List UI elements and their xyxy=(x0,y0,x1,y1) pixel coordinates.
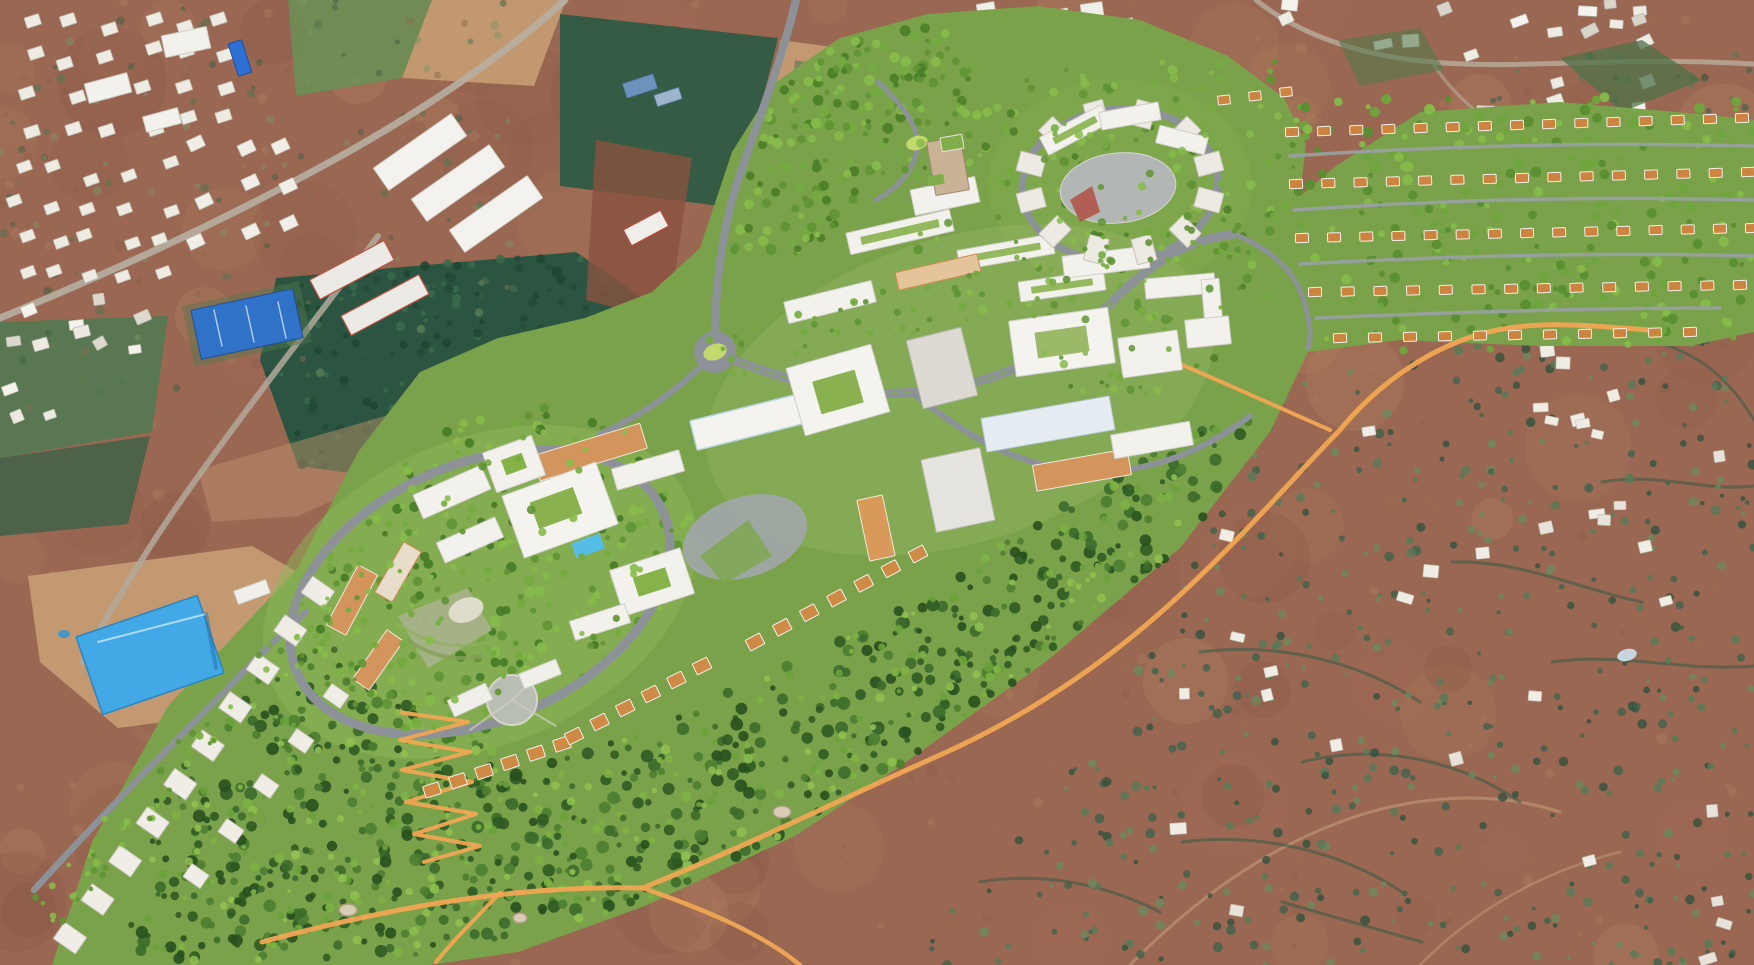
canopy-tree xyxy=(982,692,987,697)
campus-tree xyxy=(411,717,421,727)
terrain-grain xyxy=(1578,932,1583,937)
forest-tree xyxy=(459,855,464,860)
park-tree xyxy=(925,38,930,43)
campus-tree xyxy=(408,485,417,494)
forest-tree xyxy=(829,683,836,690)
forest-tree xyxy=(177,950,185,958)
park-tree xyxy=(771,188,780,197)
forest-tree xyxy=(318,773,326,781)
right-scrub xyxy=(1569,882,1574,887)
topleft-scrub xyxy=(70,236,75,241)
right-scrub xyxy=(1495,353,1505,363)
forest-speckle xyxy=(352,339,360,347)
forest-tree xyxy=(1031,621,1042,632)
right-scrub xyxy=(1697,435,1704,442)
forest-tree xyxy=(393,718,404,729)
boulevard-tree xyxy=(855,318,862,325)
right-scrub xyxy=(1089,930,1093,934)
forest-tree xyxy=(912,672,923,683)
street-tree xyxy=(102,865,108,871)
campus-tree xyxy=(460,569,467,576)
topright-scrub xyxy=(1690,84,1695,89)
street-tree xyxy=(295,664,300,669)
forest-speckle xyxy=(370,401,378,409)
campus-tree xyxy=(360,616,369,625)
canopy-tree xyxy=(1009,674,1013,678)
park-tree xyxy=(872,39,881,48)
right-scrub xyxy=(1626,393,1634,401)
right-scrub xyxy=(1618,708,1627,717)
villa-tree xyxy=(1651,290,1657,296)
campus-tree xyxy=(535,586,545,596)
canopy-tree xyxy=(325,903,334,912)
forest-tree xyxy=(342,678,350,686)
park-tree xyxy=(1059,355,1064,360)
village-house xyxy=(92,293,105,306)
right-scrub xyxy=(1682,423,1687,428)
forest-speckle xyxy=(315,347,322,354)
boulevard-tree xyxy=(742,371,747,376)
right-scrub xyxy=(1227,919,1234,926)
park-tree xyxy=(1208,103,1217,112)
right-scrub xyxy=(1508,430,1514,436)
canopy-tree xyxy=(544,878,552,886)
forest-tree xyxy=(388,760,395,767)
villa-tree xyxy=(1556,120,1562,126)
right-scrub xyxy=(1262,856,1270,864)
terrain-grain xyxy=(136,280,141,285)
villa xyxy=(1439,285,1452,294)
right-scrub xyxy=(1608,596,1616,604)
topleft-scrub xyxy=(434,72,441,79)
park-tree xyxy=(1166,346,1172,352)
topleft-scrub xyxy=(509,285,517,293)
park-tree xyxy=(758,236,768,246)
campus-tree xyxy=(566,459,574,467)
right-scrub xyxy=(1321,772,1329,780)
right-scrub xyxy=(1621,875,1629,883)
park-tree xyxy=(802,195,809,202)
park-tree xyxy=(793,93,800,100)
topleft-scrub xyxy=(93,186,102,195)
forest-tree xyxy=(1051,635,1056,640)
villa xyxy=(1360,232,1373,241)
forest-speckle xyxy=(383,388,388,393)
right-scrub xyxy=(1651,525,1660,534)
forest-tree xyxy=(950,674,956,680)
right-scrub xyxy=(1679,957,1685,963)
forest-tree xyxy=(483,803,493,813)
villa-tree xyxy=(1362,127,1373,138)
right-scrub xyxy=(1737,654,1745,662)
canopy-tree xyxy=(420,925,424,929)
terrain-grain xyxy=(1388,111,1395,118)
right-scrub xyxy=(1744,743,1749,748)
park-tree xyxy=(925,119,931,125)
right-scrub xyxy=(1134,665,1144,675)
campus-tree xyxy=(613,615,620,622)
park-tree xyxy=(828,190,834,196)
canopy-tree xyxy=(1090,572,1096,578)
forest-tree xyxy=(570,853,577,860)
forest-tree xyxy=(918,603,928,613)
right-scrub xyxy=(1131,781,1141,791)
terrain-grain xyxy=(1296,42,1308,54)
canopy-tree xyxy=(471,745,481,755)
right-scrub xyxy=(1439,693,1448,702)
terrain-grain xyxy=(1048,759,1054,765)
forest-tree xyxy=(655,824,660,829)
villa-tree xyxy=(1629,118,1640,129)
villa-tree xyxy=(1366,104,1371,109)
terrain-grain xyxy=(1482,715,1487,720)
park-tree xyxy=(1134,299,1141,306)
right-scrub xyxy=(1372,458,1382,468)
villa-tree xyxy=(1656,337,1662,343)
canopy-tree xyxy=(997,542,1005,550)
campus-tree xyxy=(514,650,523,659)
right-scrub xyxy=(1405,898,1411,904)
right-scrub xyxy=(1533,758,1541,766)
canopy-tree xyxy=(497,780,503,786)
terrain-grain xyxy=(1620,630,1626,636)
campus-tree xyxy=(615,629,622,636)
campus-tree xyxy=(476,416,485,425)
farm-house xyxy=(1362,426,1376,437)
right-scrub xyxy=(1509,458,1515,464)
canopy-tree xyxy=(456,919,464,927)
villa-tree xyxy=(1414,208,1423,217)
aerial-3d-masterplan-rendering xyxy=(0,0,1754,965)
forest-tree xyxy=(162,855,169,862)
right-scrub xyxy=(1630,950,1638,958)
right-scrub xyxy=(1296,493,1305,502)
forest-tree xyxy=(327,841,337,851)
forest-tree xyxy=(175,912,181,918)
forest-tree xyxy=(537,814,549,826)
terrain-grain xyxy=(1527,854,1537,864)
park-tree xyxy=(1169,150,1176,157)
canopy-tree xyxy=(1171,484,1180,493)
campus-tree xyxy=(637,566,643,572)
campus-tree xyxy=(331,662,336,667)
villa-tree xyxy=(1495,289,1501,295)
canopy-tree xyxy=(309,812,317,820)
canopy-tree xyxy=(665,755,673,763)
right-scrub xyxy=(1331,789,1336,794)
forest-tree xyxy=(306,799,319,812)
park-tree xyxy=(1080,79,1089,88)
forest-tree xyxy=(1143,563,1151,571)
park-tree xyxy=(1223,205,1231,213)
topleft-scrub xyxy=(180,6,185,11)
terrain-grain xyxy=(283,67,290,74)
park-tree xyxy=(1082,315,1090,323)
villa xyxy=(1713,224,1726,233)
park-tree xyxy=(1115,373,1124,382)
campus-tree xyxy=(348,661,355,668)
forest-tree xyxy=(170,892,179,901)
right-scrub xyxy=(1302,509,1309,516)
villa-tree xyxy=(1318,170,1327,179)
park-tree xyxy=(920,23,930,33)
forest-tree xyxy=(1140,534,1152,546)
park-tree xyxy=(932,36,942,46)
farm-house xyxy=(1713,450,1725,462)
topright-scrub xyxy=(1732,52,1739,59)
right-scrub xyxy=(1613,766,1623,776)
park-tree xyxy=(1079,90,1088,99)
canopy-tree xyxy=(911,685,917,691)
canopy-tree xyxy=(369,804,374,809)
canopy-tree xyxy=(764,676,770,682)
right-scrub xyxy=(1702,886,1707,891)
forest-tree xyxy=(876,763,888,775)
park-tree xyxy=(1286,227,1290,231)
topleft-scrub xyxy=(103,161,108,166)
park-tree xyxy=(1051,124,1059,132)
campus-tree xyxy=(400,504,405,509)
right-scrub xyxy=(1459,473,1465,479)
forest-tree xyxy=(711,774,724,787)
forest-tree xyxy=(333,940,342,949)
forest-speckle xyxy=(404,270,411,277)
terrain-grain xyxy=(45,242,53,250)
forest-tree xyxy=(626,856,637,867)
right-scrub xyxy=(1567,602,1574,609)
right-scrub xyxy=(1265,780,1273,788)
park-tree xyxy=(825,120,835,130)
campus-tree xyxy=(319,639,327,647)
canopy-tree xyxy=(271,942,278,949)
villa-tree xyxy=(1324,336,1329,341)
villa-tree xyxy=(1520,300,1531,311)
campus-tree xyxy=(496,606,506,616)
campus-tree xyxy=(367,690,374,697)
park-tree xyxy=(945,46,950,51)
forest-tree xyxy=(377,930,384,937)
boulevard-tree xyxy=(1148,257,1154,263)
park-tree xyxy=(1062,122,1066,126)
street-tree xyxy=(208,741,212,745)
campus-tree xyxy=(450,564,456,570)
boulevard-tree xyxy=(1234,223,1241,230)
park-tree xyxy=(941,64,947,70)
topleft-scrub xyxy=(282,162,287,167)
park-tree xyxy=(1158,245,1164,251)
park-tree xyxy=(807,222,817,232)
villa xyxy=(1671,115,1684,124)
canopy-tree xyxy=(353,783,360,790)
villa-tree xyxy=(1739,262,1744,267)
forest-tree xyxy=(759,761,765,767)
park-tree xyxy=(1105,383,1109,387)
forest-tree xyxy=(452,903,460,911)
right-scrub xyxy=(1296,913,1305,922)
villa-tree xyxy=(1591,213,1600,222)
right-scrub xyxy=(1250,941,1259,950)
forest-tree xyxy=(605,865,614,874)
right-scrub xyxy=(1532,952,1541,961)
terrain-grain xyxy=(46,78,52,84)
canopy-tree xyxy=(1091,605,1095,609)
right-scrub xyxy=(1155,920,1165,930)
forest-tree xyxy=(344,789,349,794)
canopy-tree xyxy=(639,791,647,799)
topleft-scrub xyxy=(388,235,393,240)
canopy-tree xyxy=(220,902,228,910)
forest-tree xyxy=(836,790,842,796)
forest-tree xyxy=(331,646,338,653)
street-tree xyxy=(185,742,192,749)
right-scrub xyxy=(1671,778,1675,782)
forest-tree xyxy=(851,733,856,738)
forest-tree xyxy=(487,886,493,892)
terrain-grain xyxy=(560,216,566,222)
forest-tree xyxy=(165,941,176,952)
villa xyxy=(1472,285,1485,294)
right-scrub xyxy=(1724,851,1731,858)
villa-tree xyxy=(1368,172,1373,177)
forest-tree xyxy=(481,928,493,940)
park-tree xyxy=(843,170,851,178)
villa-tree xyxy=(1538,271,1549,282)
forest-tree xyxy=(136,926,148,938)
canopy-tree xyxy=(993,665,1001,673)
forest-tree xyxy=(194,840,202,848)
forest-tree xyxy=(539,908,546,915)
street-tree xyxy=(120,842,125,847)
street-tree xyxy=(89,887,94,892)
right-scrub xyxy=(1191,562,1199,570)
forest-tree xyxy=(721,844,726,849)
topleft-scrub xyxy=(134,140,140,146)
right-scrub xyxy=(1385,639,1392,646)
forest-tree xyxy=(281,860,293,872)
canopy-tree xyxy=(534,804,543,813)
forest-speckle xyxy=(433,333,440,340)
park-tree xyxy=(772,138,783,149)
topleft-scrub xyxy=(454,154,460,160)
canopy-tree xyxy=(365,704,371,710)
terrain-grain xyxy=(261,146,269,154)
campus-tree xyxy=(359,572,364,577)
street-tree xyxy=(91,853,96,858)
campus-tree xyxy=(409,603,414,608)
street-tree xyxy=(346,607,352,613)
forest-tree xyxy=(361,938,367,944)
boulevard-tree xyxy=(838,308,843,313)
topleft-scrub xyxy=(306,190,314,198)
canopy-tree xyxy=(1109,481,1118,490)
right-scrub xyxy=(1213,922,1222,931)
right-scrub xyxy=(1553,923,1558,928)
park-tree xyxy=(849,195,858,204)
villa-tree xyxy=(1378,302,1384,308)
forest-speckle xyxy=(351,292,356,297)
right-scrub xyxy=(1455,946,1460,951)
park-tree xyxy=(1258,103,1264,109)
right-scrub xyxy=(1056,862,1064,870)
right-scrub xyxy=(1080,930,1088,938)
park-tree xyxy=(1178,147,1186,155)
forest-speckle xyxy=(558,299,565,306)
villa xyxy=(1520,228,1533,237)
boulevard-tree xyxy=(927,317,933,323)
terrain-mottle xyxy=(1314,610,1355,651)
villa-tree xyxy=(1369,161,1380,172)
forest-tree xyxy=(749,722,760,733)
villa-tree xyxy=(1298,222,1305,229)
forest-tree xyxy=(967,661,973,667)
canopy-tree xyxy=(949,593,958,602)
right-scrub xyxy=(1364,774,1372,782)
topleft-scrub xyxy=(461,20,468,27)
topleft-scrub xyxy=(134,334,141,341)
forest-tree xyxy=(180,935,186,941)
forest-tree xyxy=(260,867,268,875)
farm-house xyxy=(1528,691,1542,702)
street-tree xyxy=(76,897,80,901)
right-scrub xyxy=(1405,692,1412,699)
right-scrub xyxy=(1450,541,1457,548)
canopy-tree xyxy=(322,892,332,902)
forest-tree xyxy=(952,613,957,618)
park-tree xyxy=(915,175,921,181)
forest-tree xyxy=(156,892,161,897)
forest-tree xyxy=(596,841,609,854)
forest-speckle xyxy=(362,398,371,407)
terrain-grain xyxy=(1370,586,1379,595)
canopy-tree xyxy=(446,829,453,836)
forest-tree xyxy=(640,840,649,849)
boulevard-tree xyxy=(1049,278,1056,285)
forest-tree xyxy=(683,877,691,885)
forest-tree xyxy=(231,852,241,862)
right-scrub xyxy=(1731,635,1739,643)
canopy-tree xyxy=(291,851,300,860)
topleft-scrub xyxy=(105,179,112,186)
right-scrub xyxy=(1643,687,1650,694)
villa-tree xyxy=(1534,244,1539,249)
forest-tree xyxy=(368,766,373,771)
forest-tree xyxy=(585,896,590,901)
forest-tree xyxy=(180,803,187,810)
topleft-scrub xyxy=(447,218,451,222)
terrain-grain xyxy=(1513,55,1518,60)
right-scrub xyxy=(1271,738,1279,746)
forest-tree xyxy=(556,867,563,874)
boulevard-tree xyxy=(1098,251,1106,259)
villa-tree xyxy=(1461,123,1470,132)
canopy-tree xyxy=(159,869,168,878)
canopy-tree xyxy=(405,888,413,896)
canopy-tree xyxy=(193,848,200,855)
forest-tree xyxy=(633,894,639,900)
right-scrub xyxy=(1746,909,1751,914)
park-tree xyxy=(1217,75,1224,82)
canopy-tree xyxy=(593,825,601,833)
terrain-grain xyxy=(1420,420,1426,426)
canopy-tree xyxy=(981,554,990,563)
villa-tree xyxy=(1487,345,1494,352)
forest-tree xyxy=(730,830,737,837)
topleft-scrub xyxy=(10,120,15,125)
boulevard-tree xyxy=(1022,257,1026,261)
villa xyxy=(1613,328,1626,337)
forest-tree xyxy=(430,942,436,948)
forest-tree xyxy=(415,915,426,926)
